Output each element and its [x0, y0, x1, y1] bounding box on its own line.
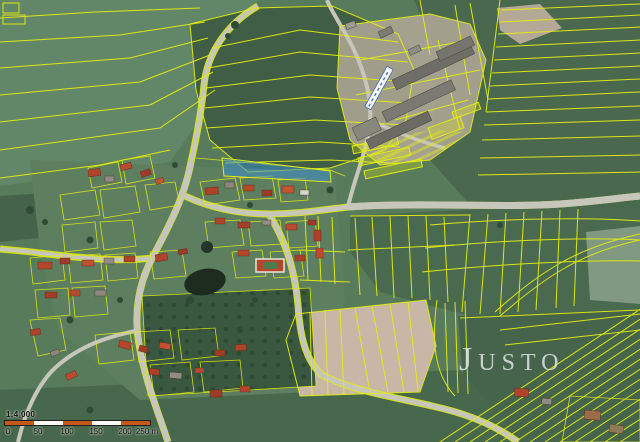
scale-tick: 250 m — [136, 427, 158, 436]
sports-court — [256, 259, 284, 272]
scale-segment — [5, 421, 34, 425]
scale-bar: 1:4 000 0 50 100 150 200 250 m — [4, 410, 194, 440]
map-viewport[interactable]: 1:4 000 0 50 100 150 200 250 m Justo — [0, 0, 640, 442]
scale-segment — [63, 421, 92, 425]
scale-tick: 0 — [6, 427, 10, 436]
scale-segment — [34, 421, 63, 425]
scale-segment — [92, 421, 121, 425]
scale-tick: 200 — [118, 427, 131, 436]
orchard — [142, 288, 316, 396]
scale-segment — [121, 421, 150, 425]
scale-tick-labels: 0 50 100 150 200 250 m — [4, 427, 194, 439]
watermark: Justo — [459, 341, 564, 379]
scale-tick: 100 — [60, 427, 73, 436]
scale-bar-segments — [4, 420, 151, 426]
scale-tick: 150 — [89, 427, 102, 436]
scale-ratio-label: 1:4 000 — [6, 410, 35, 419]
scale-tick: 50 — [34, 427, 43, 436]
